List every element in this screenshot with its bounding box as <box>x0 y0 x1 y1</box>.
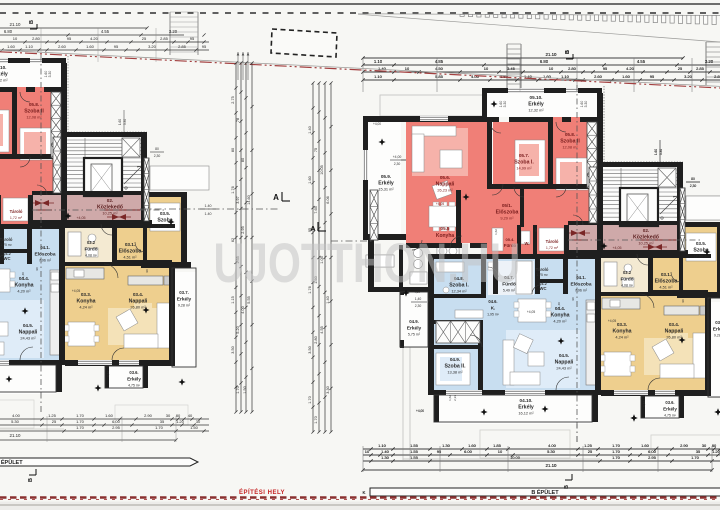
svg-text:1.70: 1.70 <box>314 416 318 423</box>
svg-text:1.40: 1.40 <box>308 126 312 133</box>
svg-text:14.60: 14.60 <box>247 195 251 205</box>
svg-text:5.20: 5.20 <box>236 326 240 333</box>
svg-text:B: B <box>28 478 34 482</box>
svg-text:1.60: 1.60 <box>308 176 312 183</box>
svg-text:3.50: 3.50 <box>308 346 312 353</box>
svg-text:A: A <box>273 193 279 202</box>
svg-text:80: 80 <box>241 158 245 162</box>
svg-text:3.30: 3.30 <box>326 386 330 393</box>
svg-text:10.05: 10.05 <box>320 165 324 175</box>
svg-text:6.06: 6.06 <box>326 196 330 203</box>
svg-text:4.00: 4.00 <box>241 306 245 313</box>
svg-text:1.70: 1.70 <box>308 396 312 403</box>
svg-text:2.80: 2.80 <box>314 336 318 343</box>
svg-text:78: 78 <box>236 118 240 122</box>
svg-text:B: B <box>564 485 570 489</box>
svg-text:1.76: 1.76 <box>231 186 235 193</box>
svg-text:1.15: 1.15 <box>231 296 235 303</box>
svg-text:3.97: 3.97 <box>236 196 240 203</box>
svg-text:80: 80 <box>231 148 235 152</box>
svg-text:7.65: 7.65 <box>314 206 318 213</box>
svg-text:1.70: 1.70 <box>236 386 240 393</box>
svg-text:1.50: 1.50 <box>243 386 247 393</box>
svg-text:UJOTTHON.HU: UJOTTHON.HU <box>214 231 521 294</box>
svg-text:4.55: 4.55 <box>320 326 324 333</box>
svg-text:ÉPÍTÉSI HELY: ÉPÍTÉSI HELY <box>239 488 285 496</box>
svg-text:75: 75 <box>314 148 318 152</box>
svg-text:1.40: 1.40 <box>326 296 330 303</box>
svg-text:3.50: 3.50 <box>231 346 235 353</box>
svg-text:2.75: 2.75 <box>231 96 235 103</box>
svg-text:5.55: 5.55 <box>247 296 251 303</box>
